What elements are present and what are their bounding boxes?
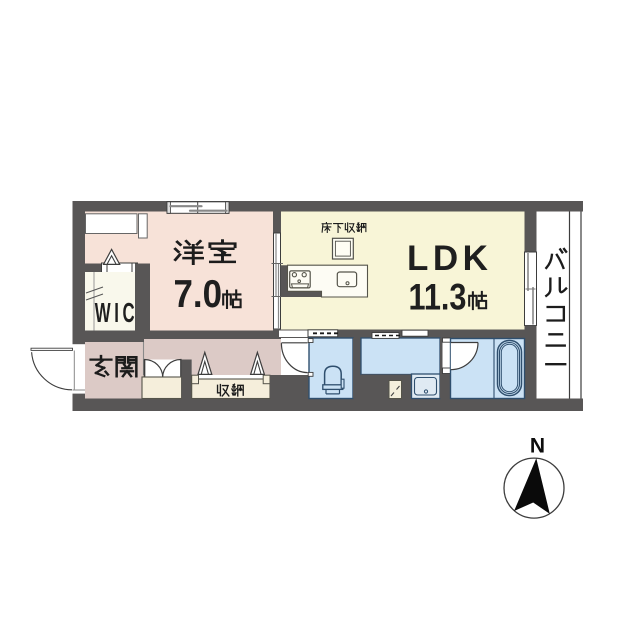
svg-text:7.0: 7.0 [174,273,223,316]
svg-text:LDK: LDK [407,239,492,278]
svg-text:N: N [530,435,545,458]
svg-text:11.3: 11.3 [409,277,467,318]
svg-text:WIC: WIC [95,297,138,329]
